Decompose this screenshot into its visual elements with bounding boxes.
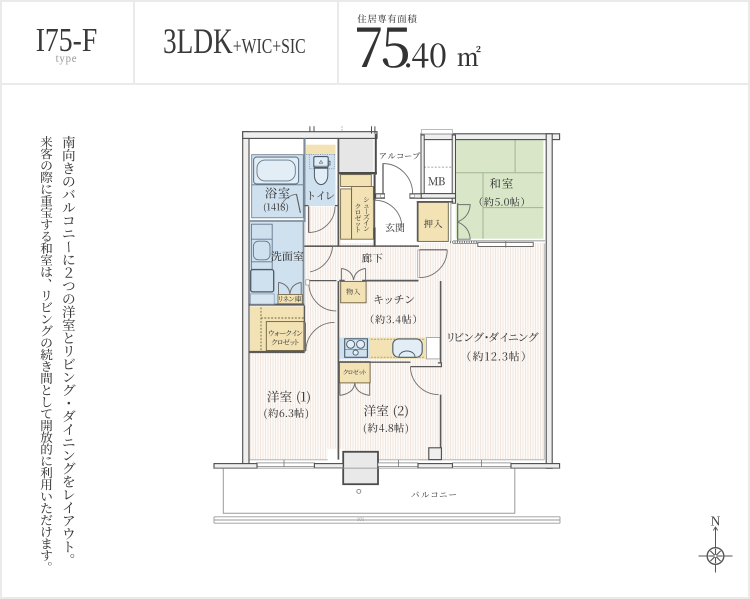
svg-text:N: N: [711, 514, 721, 529]
svg-text:101: 101: [357, 518, 365, 523]
